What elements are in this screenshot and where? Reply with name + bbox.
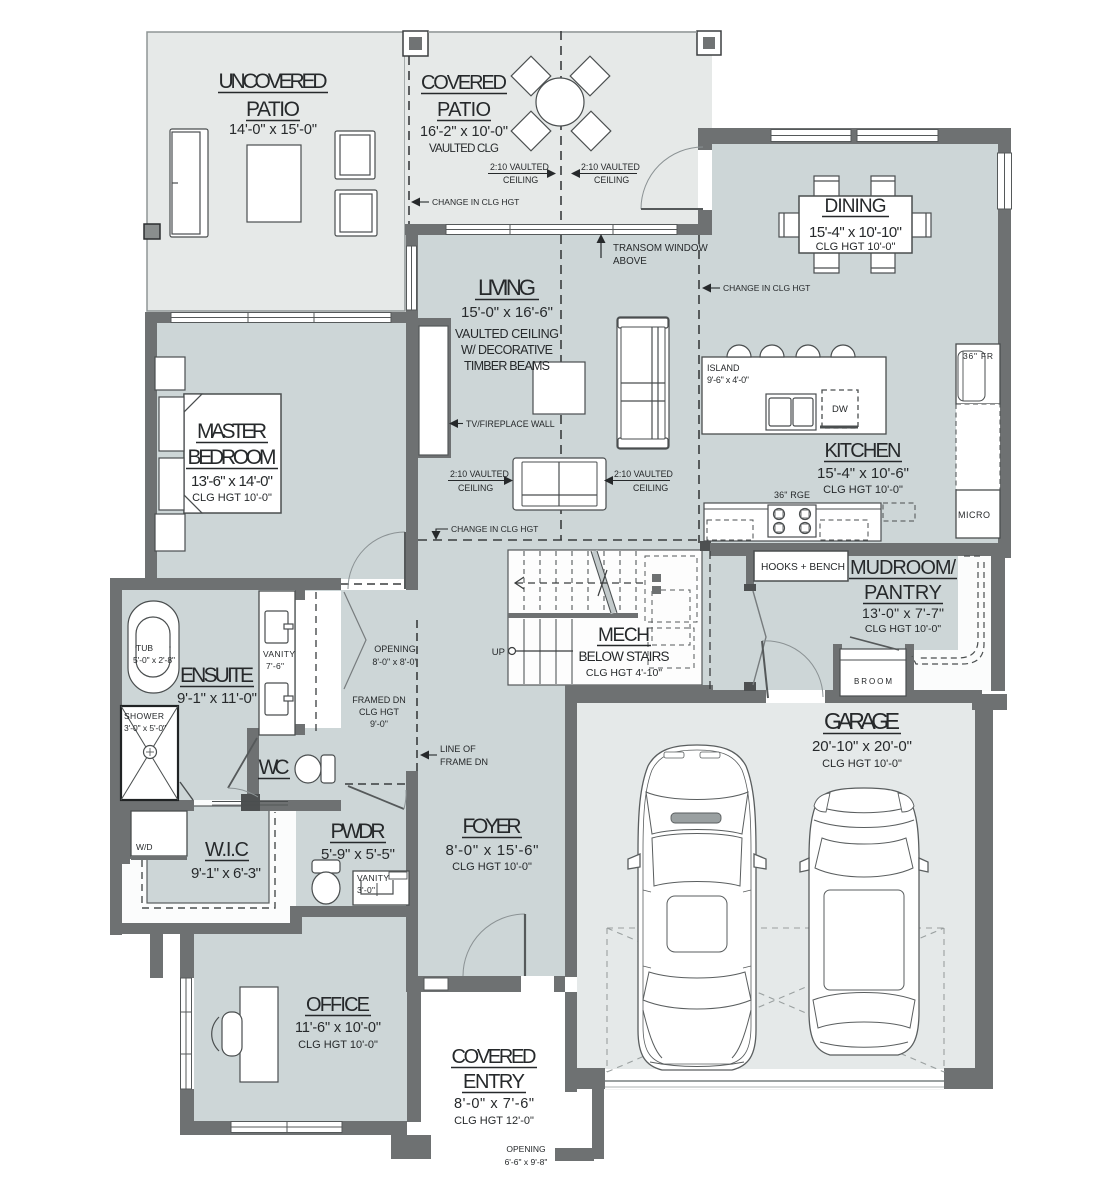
svg-text:OFFICE: OFFICE xyxy=(306,994,370,1016)
svg-text:LIVING: LIVING xyxy=(478,275,536,300)
svg-text:CEILING: CEILING xyxy=(503,175,538,185)
svg-text:W/ DECORATIVE: W/ DECORATIVE xyxy=(461,343,553,357)
svg-text:3'-0" x 5'-0": 3'-0" x 5'-0" xyxy=(124,723,166,733)
svg-text:36" RGE: 36" RGE xyxy=(774,490,810,500)
svg-text:TV/FIREPLACE WALL: TV/FIREPLACE WALL xyxy=(466,419,555,429)
svg-text:CLG HGT 10'-0": CLG HGT 10'-0" xyxy=(822,758,902,770)
svg-text:COVERED: COVERED xyxy=(452,1046,537,1068)
svg-text:CLG HGT 10'-0": CLG HGT 10'-0" xyxy=(816,241,896,253)
svg-text:11'-6" x 10'-0": 11'-6" x 10'-0" xyxy=(295,1020,381,1036)
svg-text:9'-1" x 6'-3": 9'-1" x 6'-3" xyxy=(191,865,261,882)
svg-text:UNCOVERED: UNCOVERED xyxy=(219,70,328,93)
svg-text:15'-4" x 10'-6": 15'-4" x 10'-6" xyxy=(817,465,909,482)
svg-text:ENSUITE: ENSUITE xyxy=(180,664,254,687)
svg-text:UP: UP xyxy=(492,647,505,658)
svg-text:OPENING: OPENING xyxy=(374,644,416,654)
svg-text:TUB: TUB xyxy=(136,643,153,653)
svg-text:CLG HGT 10'-0": CLG HGT 10'-0" xyxy=(452,861,532,873)
svg-text:TRANSOM WINDOW: TRANSOM WINDOW xyxy=(613,243,708,254)
svg-text:KITCHEN: KITCHEN xyxy=(825,440,902,462)
svg-text:GARAGE: GARAGE xyxy=(824,708,900,734)
svg-text:13'-6" x 14'-0": 13'-6" x 14'-0" xyxy=(191,473,273,490)
svg-text:2:10 VAULTED: 2:10 VAULTED xyxy=(581,162,640,172)
svg-text:WC: WC xyxy=(259,756,290,779)
svg-text:8'-0" x 15'-6": 8'-0" x 15'-6" xyxy=(446,842,539,859)
svg-text:HOOKS + BENCH: HOOKS + BENCH xyxy=(761,562,845,573)
svg-text:DW: DW xyxy=(832,404,848,415)
svg-text:CLG HGT 10'-0": CLG HGT 10'-0" xyxy=(865,623,941,635)
svg-text:SHOWER: SHOWER xyxy=(124,711,164,721)
svg-text:8'-0" x 7'-6": 8'-0" x 7'-6" xyxy=(454,1096,534,1112)
svg-text:LINE OF: LINE OF xyxy=(440,744,476,754)
svg-text:20'-10" x 20'-0": 20'-10" x 20'-0" xyxy=(812,738,912,755)
svg-text:PWDR: PWDR xyxy=(331,820,386,843)
svg-text:COVERED: COVERED xyxy=(421,72,507,94)
svg-text:BELOW STAIRS: BELOW STAIRS xyxy=(579,649,670,664)
svg-text:CHANGE IN CLG HGT: CHANGE IN CLG HGT xyxy=(723,283,810,293)
svg-text:7'-6": 7'-6" xyxy=(266,661,284,671)
svg-text:CLG HGT 10'-0": CLG HGT 10'-0" xyxy=(298,1039,378,1051)
svg-text:5'-9" x 5'-5": 5'-9" x 5'-5" xyxy=(321,846,395,863)
svg-text:CHANGE IN CLG HGT: CHANGE IN CLG HGT xyxy=(432,197,519,207)
svg-text:2:10 VAULTED: 2:10 VAULTED xyxy=(450,469,509,479)
svg-text:6'-6" x 9'-8": 6'-6" x 9'-8" xyxy=(505,1157,548,1167)
svg-text:PATIO: PATIO xyxy=(246,98,300,121)
svg-text:9'-6" x 4'-0": 9'-6" x 4'-0" xyxy=(707,375,749,385)
svg-text:MUDROOM/: MUDROOM/ xyxy=(850,557,956,579)
svg-text:CEILING: CEILING xyxy=(594,175,629,185)
svg-text:TIMBER BEAMS: TIMBER BEAMS xyxy=(464,359,550,373)
svg-text:W/D: W/D xyxy=(136,842,153,852)
svg-text:16'-2" x 10'-0": 16'-2" x 10'-0" xyxy=(420,124,508,140)
svg-text:DINING: DINING xyxy=(825,196,887,217)
svg-text:VANITY: VANITY xyxy=(263,649,295,659)
svg-text:2:10 VAULTED: 2:10 VAULTED xyxy=(490,162,549,172)
svg-text:FRAME DN: FRAME DN xyxy=(440,757,488,767)
svg-text:5'-0" x 2'-8": 5'-0" x 2'-8" xyxy=(133,655,175,665)
svg-text:9'-1" x 11'-0": 9'-1" x 11'-0" xyxy=(177,690,257,707)
svg-text:ABOVE: ABOVE xyxy=(613,256,647,267)
svg-text:15'-0" x 16'-6": 15'-0" x 16'-6" xyxy=(461,304,553,321)
svg-text:9'-0": 9'-0" xyxy=(370,719,388,729)
svg-text:3'-0": 3'-0" xyxy=(357,885,375,895)
svg-text:FOYER: FOYER xyxy=(463,815,522,838)
svg-text:VAULTED CEILING: VAULTED CEILING xyxy=(455,327,559,341)
svg-text:OPENING: OPENING xyxy=(506,1144,545,1154)
svg-text:15'-4" x 10'-10": 15'-4" x 10'-10" xyxy=(809,224,902,241)
svg-text:CLG HGT: CLG HGT xyxy=(359,707,400,717)
svg-text:36" FR: 36" FR xyxy=(963,351,993,361)
svg-text:MASTER: MASTER xyxy=(197,420,267,443)
svg-text:BEDROOM: BEDROOM xyxy=(188,446,277,469)
svg-text:CLG HGT 12'-0": CLG HGT 12'-0" xyxy=(454,1115,534,1127)
svg-text:14'-0" x 15'-0": 14'-0" x 15'-0" xyxy=(229,122,317,138)
svg-text:FRAMED DN: FRAMED DN xyxy=(352,695,406,705)
svg-text:PANTRY: PANTRY xyxy=(864,582,942,604)
svg-text:CEILING: CEILING xyxy=(458,483,493,493)
svg-text:CLG HGT 4'-10": CLG HGT 4'-10" xyxy=(586,667,662,679)
svg-text:MECH: MECH xyxy=(598,625,650,646)
svg-text:W.I.C: W.I.C xyxy=(205,839,249,861)
svg-text:CEILING: CEILING xyxy=(633,483,668,493)
svg-text:VANITY: VANITY xyxy=(357,873,389,883)
svg-text:MICRO: MICRO xyxy=(958,510,990,520)
svg-text:CHANGE IN CLG HGT: CHANGE IN CLG HGT xyxy=(451,524,538,534)
svg-text:ENTRY: ENTRY xyxy=(463,1071,525,1093)
svg-text:CLG HGT 10'-0": CLG HGT 10'-0" xyxy=(192,492,272,504)
svg-text:13'-0" x 7'-7": 13'-0" x 7'-7" xyxy=(862,605,944,621)
svg-text:ISLAND: ISLAND xyxy=(707,363,740,373)
svg-text:2:10 VAULTED: 2:10 VAULTED xyxy=(614,469,673,479)
svg-text:PATIO: PATIO xyxy=(437,99,491,121)
svg-text:CLG HGT 10'-0": CLG HGT 10'-0" xyxy=(823,484,903,496)
svg-text:8'-0" x 8'-0": 8'-0" x 8'-0" xyxy=(372,657,417,667)
svg-text:VAULTED CLG: VAULTED CLG xyxy=(429,143,499,155)
